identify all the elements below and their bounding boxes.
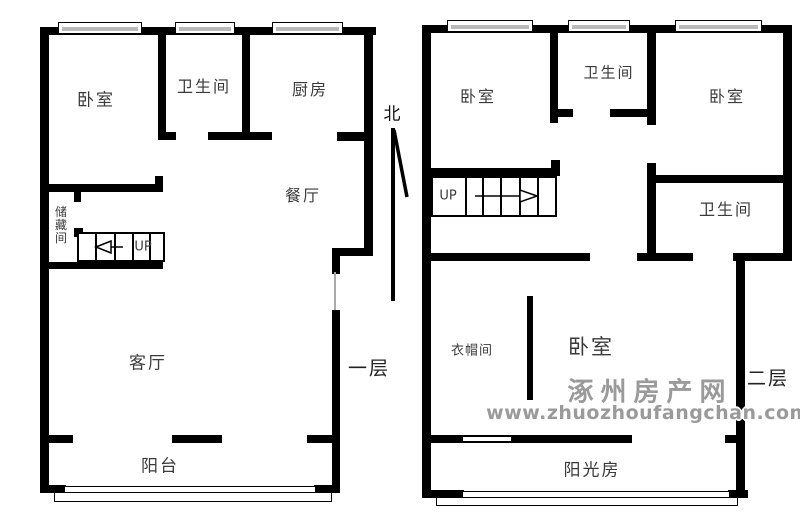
f2-wall-bedright-bottom [656, 175, 792, 183]
f1-wall-right-mid [332, 248, 340, 274]
f1-room-label-kitchen: 厨房 [292, 76, 328, 100]
f2-room-label-bedroom-main: 卧室 [568, 331, 614, 361]
f2-wall-middiv-a [431, 253, 590, 261]
f2-window-2-glass [572, 25, 626, 29]
f1-door-opening-line [334, 272, 336, 312]
f2-wall-bath-bedright [647, 33, 656, 125]
f2-wall-sunroom-b [725, 435, 737, 443]
f1-wall-bedroom-bottom-stub [155, 176, 163, 185]
f2-wall-bed-bath [550, 33, 558, 123]
f2-wall-bed-bath-stub [558, 109, 573, 117]
f2-room-label-bathroom-right: 卫生间 [699, 196, 753, 220]
f1-stairs-direction-arrow [77, 232, 165, 262]
f2-window-1-glass [451, 25, 529, 29]
f1-wall-left [40, 27, 49, 493]
f2-room-label-bathroom-top: 卫生间 [583, 62, 634, 83]
f2-sunroom-divider-window [462, 436, 512, 442]
floor1-label: 一层 [348, 354, 390, 381]
f1-room-label-balcony: 阳台 [141, 452, 179, 477]
f1-wall-storage-stub [74, 192, 81, 202]
f1-balcony-window [64, 486, 316, 493]
f2-wall-cloakroom [527, 296, 533, 400]
f1-wall-bath-kitchen [242, 33, 250, 140]
f1-wall-bath-bottom [208, 132, 272, 140]
north-label: 北 [384, 100, 401, 125]
f2-window-3-glass [679, 25, 758, 29]
f2-wall-stairs-top-stub [551, 160, 560, 169]
f1-wall-below-stairs [49, 262, 163, 269]
f1-wall-balcony-b [172, 435, 222, 443]
f1-wall-bedroom-bottom [49, 184, 163, 192]
watermark-site-url: www.zhuozhoufangchan.com [486, 402, 800, 424]
floor-plan-canvas: UP 卧室 卫生间 厨房 餐厅 储藏间 客厅 阳台 一层 北 [0, 0, 800, 519]
f1-wall-balcony-a [49, 435, 73, 443]
f2-stairs-up-label: UP [439, 189, 456, 204]
f2-wall-right-lower [736, 253, 745, 498]
f1-window-3-glass [276, 27, 339, 31]
f1-room-label-storage: 储藏间 [53, 206, 70, 245]
f2-wall-bath-bottom [610, 109, 648, 117]
f2-room-label-bedroom-left: 卧室 [460, 83, 496, 107]
f1-wall-kitchen-stub [337, 132, 364, 141]
f2-room-label-sunroom: 阳光房 [564, 456, 621, 481]
f1-wall-balcony-c [307, 435, 333, 443]
f1-room-label-dining: 餐厅 [285, 182, 321, 206]
north-arrow-icon [378, 125, 418, 305]
f2-wall-middiv-b [637, 253, 693, 261]
floor2-label: 二层 [747, 364, 789, 391]
f2-wall-right-upper [783, 25, 792, 261]
f1-room-label-living: 客厅 [129, 349, 167, 374]
f2-wall-bathright-left [647, 163, 656, 261]
f1-wall-bed-bath [158, 33, 166, 140]
f2-wall-bottom-left [422, 490, 464, 498]
f1-window-2-glass [179, 27, 231, 31]
f2-wall-bottom-right [728, 490, 748, 498]
f1-wall-right-lower [332, 310, 340, 493]
f2-sunroom-window [462, 491, 730, 498]
f1-wall-bottom-left [40, 485, 66, 493]
f2-room-label-bedroom-right: 卧室 [709, 83, 745, 107]
f2-wall-stairs-top [431, 168, 560, 176]
f1-wall-bed-bath-foot [158, 132, 176, 140]
f1-wall-right-upper [364, 27, 373, 256]
f2-wall-left [422, 25, 431, 498]
f1-wall-bottom-right [314, 485, 340, 493]
f2-room-label-cloakroom: 衣帽间 [451, 340, 493, 359]
f1-room-label-bathroom: 卫生间 [177, 73, 231, 97]
f1-window-1-glass [62, 27, 138, 31]
f1-room-label-bedroom: 卧室 [77, 86, 115, 111]
f1-stairs-up-label: UP [134, 240, 151, 255]
